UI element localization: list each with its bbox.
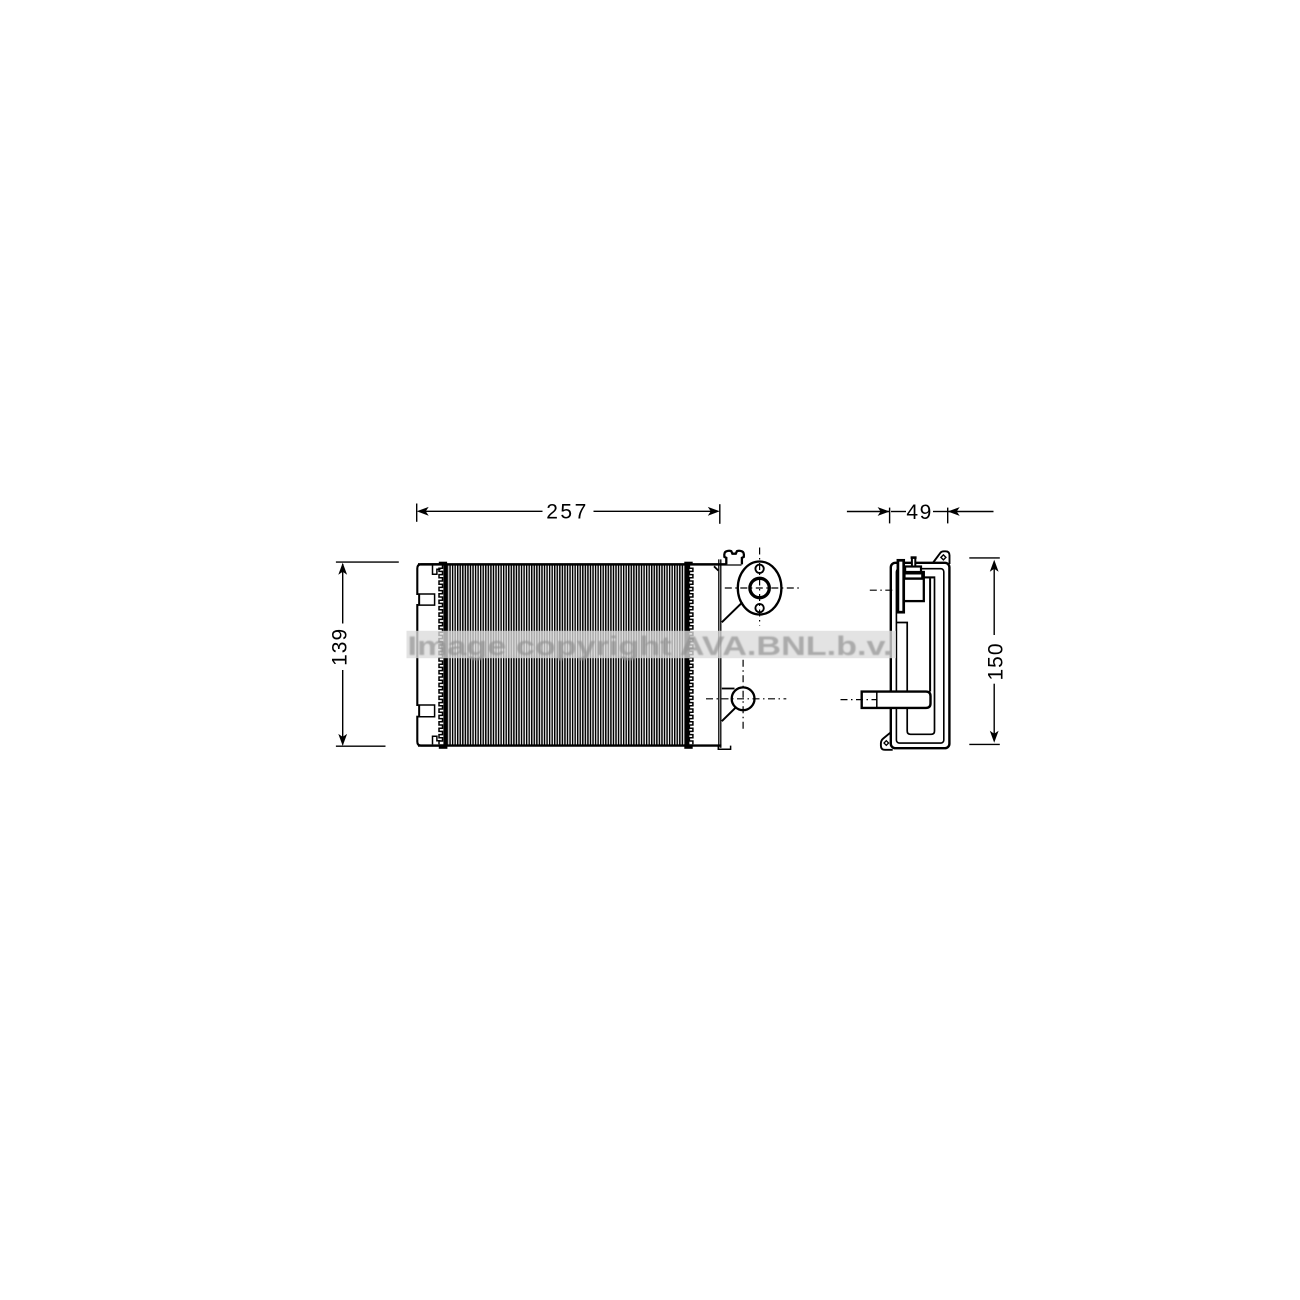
svg-text:139: 139 [329,628,352,666]
svg-text:150: 150 [985,642,1008,680]
svg-text:49: 49 [906,501,932,524]
svg-text:257: 257 [546,501,589,524]
svg-text:Image copyright AVA.BNL.b.v.: Image copyright AVA.BNL.b.v. [408,631,893,661]
